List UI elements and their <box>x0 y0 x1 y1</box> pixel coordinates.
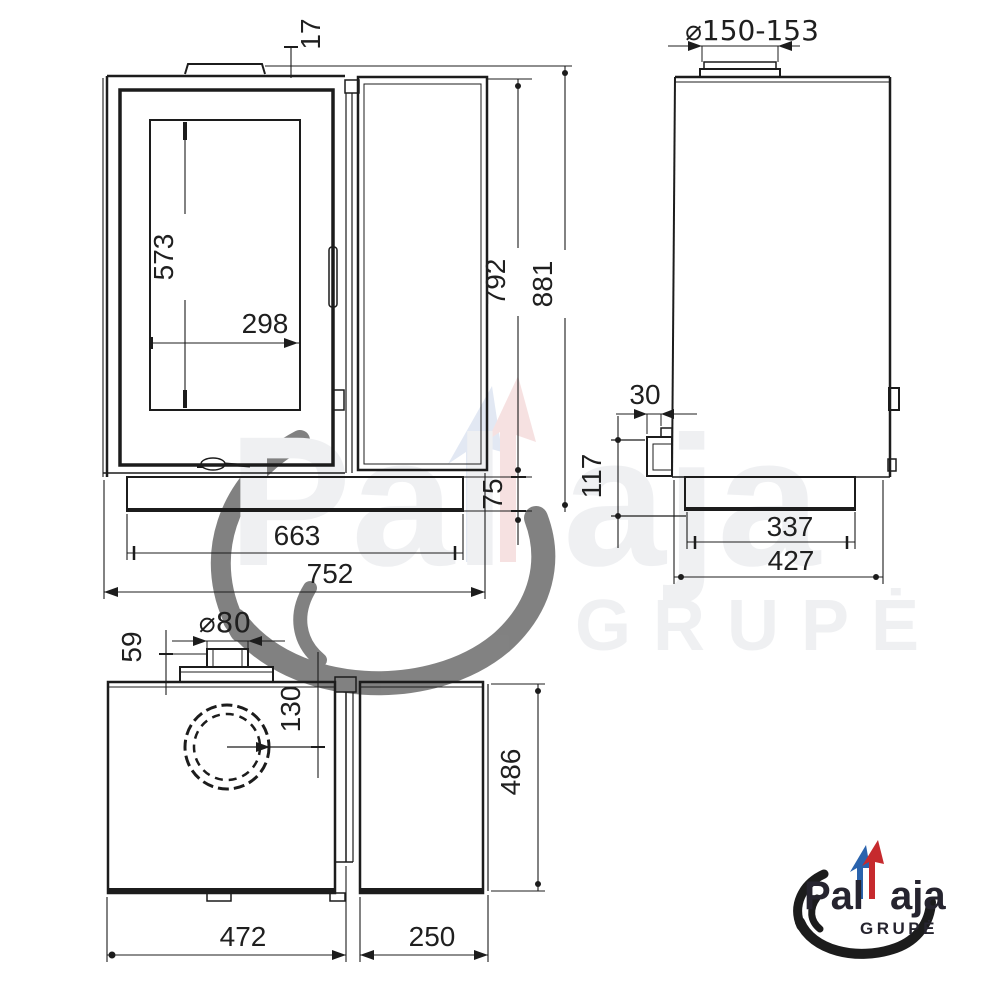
watermark-logo: Pal aja GRUPĖ <box>221 376 941 683</box>
intake-stub-flange <box>180 667 273 682</box>
technical-drawing-canvas: Pal aja GRUPĖ <box>0 0 1000 1000</box>
side-rear-stub-height-dim: 117 <box>576 454 607 499</box>
brand-logo: Pal aja GRUPĖ <box>798 840 947 954</box>
side-plinth-depth-dim: 337 <box>767 511 814 542</box>
logo-brand-prefix: Pal <box>804 874 864 918</box>
watermark-brand-prefix: Pal <box>228 399 506 605</box>
front-total-height-dim: 881 <box>527 261 558 308</box>
flue-collar-top <box>704 62 776 69</box>
watermark-subtitle: GRUPĖ <box>575 586 941 666</box>
top-intake-center-offset-dim: 130 <box>275 686 306 733</box>
logo-subtitle: GRUPĖ <box>860 919 938 938</box>
front-total-width-dim: 752 <box>307 558 354 589</box>
top-side-panel-depth-dim: 486 <box>495 749 526 796</box>
front-body-height-dim: 792 <box>480 259 511 306</box>
front-top-plate-thickness-dim: 17 <box>295 18 326 49</box>
top-body-width-dim: 472 <box>220 921 267 952</box>
top-intake-offset-dim: 59 <box>116 631 147 662</box>
front-plinth-height-dim: 75 <box>477 478 508 509</box>
logo-brand-suffix: aja <box>890 874 946 918</box>
top-intake-diameter-dim: ⌀80 <box>199 606 252 639</box>
top-side-panel-width-dim: 250 <box>409 921 456 952</box>
top-plate-strip <box>185 64 265 74</box>
front-plinth-width-dim: 663 <box>274 520 321 551</box>
side-panel-top-outline <box>360 682 483 893</box>
front-glass-width-dim: 298 <box>242 308 289 339</box>
side-rear-stub-depth-dim: 30 <box>629 379 660 410</box>
front-glass-height-dim: 573 <box>148 234 179 281</box>
side-flue-diameter-dim: ⌀150-153 <box>685 14 819 47</box>
side-total-depth-dim: 427 <box>768 545 815 576</box>
